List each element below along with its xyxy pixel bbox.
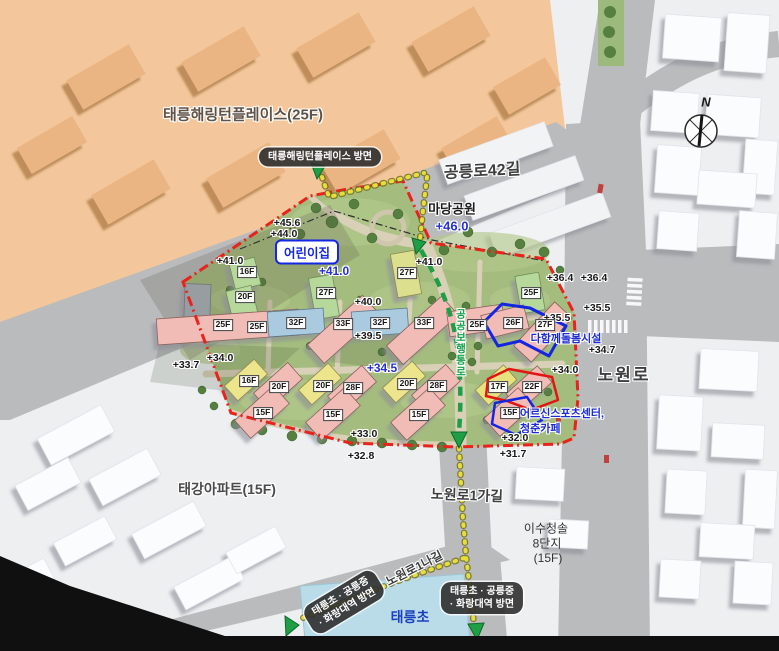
compass-north-label: N xyxy=(701,95,710,110)
road-label-nowonro1gagil: 노원로1가길 xyxy=(431,484,504,507)
building-floor-label: 22F xyxy=(522,381,542,393)
building-floor-label: 25F xyxy=(467,319,487,331)
elevation-label: +35.5 xyxy=(584,302,611,314)
direction-badge-line2: · 화랑대역 방면 xyxy=(450,598,514,611)
building-floor-label: 20F xyxy=(313,380,333,392)
building-floor-label: 33F xyxy=(414,317,434,329)
direction-badge-line1: 태릉초 · 공릉중 xyxy=(450,585,514,598)
building-floor-label: 27F xyxy=(316,287,336,299)
elevation-label-blue: +34.5 xyxy=(367,361,397,375)
green-strip xyxy=(598,0,624,66)
building-floor-label: 27F xyxy=(535,319,555,331)
elevation-label: +32.0 xyxy=(502,432,529,444)
building-floor-label: 32F xyxy=(286,317,306,329)
facility-label-senior-sports: 어르신스포츠센터, xyxy=(520,405,604,421)
elevation-label: +34.0 xyxy=(207,352,234,364)
building-floor-label: 15F xyxy=(323,409,343,421)
building-floor-label: 33F xyxy=(333,318,353,330)
building-floor-label: 17F xyxy=(488,381,508,393)
elevation-label: +41.0 xyxy=(416,256,443,268)
building-floor-label: 25F xyxy=(213,319,233,331)
district-label-taegang: 태강아파트(15F) xyxy=(178,479,276,499)
elevation-label-blue: +41.0 xyxy=(319,264,349,278)
site-plan-map: 태릉해링턴플레이스(25F) 공릉로42길 노원로 노원로1가길 노원로1나길 … xyxy=(0,0,779,651)
elevation-label: +39.5 xyxy=(355,330,382,342)
building-floor-label: 27F xyxy=(397,267,417,279)
district-label-isu-line3: (15F) xyxy=(534,551,563,565)
building-floor-label: 25F xyxy=(247,321,267,333)
district-label-taereung-elem: 태릉초 xyxy=(391,607,430,627)
elevation-label: +36.4 xyxy=(581,272,608,284)
building-floor-label: 16F xyxy=(237,266,257,278)
elevation-label-madang-park: +46.0 xyxy=(436,219,469,234)
direction-badge-harrington: 태릉해링턴플레이스 방면 xyxy=(259,148,381,167)
building-floor-label: 16F xyxy=(239,375,259,387)
elevation-label: +34.0 xyxy=(552,364,579,376)
building-floor-label: 20F xyxy=(235,291,255,303)
building-floor-label: 15F xyxy=(409,409,429,421)
elevation-label: +32.8 xyxy=(348,450,375,462)
elevation-label: +36.4 xyxy=(547,272,574,284)
building-floor-label: 26F xyxy=(503,317,523,329)
building-floor-label: 25F xyxy=(521,287,541,299)
building-floor-label: 15F xyxy=(253,407,273,419)
building-floor-label: 28F xyxy=(427,380,447,392)
elevation-label: +31.7 xyxy=(500,448,527,460)
facility-label-daycare: 어린이집 xyxy=(275,240,339,265)
elevation-label: +34.7 xyxy=(589,344,616,356)
building-floor-label: 20F xyxy=(269,381,289,393)
facility-label-madang-park: 마당공원 xyxy=(428,199,476,218)
building-floor-label: 15F xyxy=(500,407,520,419)
elevation-label: +44.0 xyxy=(271,228,298,240)
district-label-isu-line2: 8단지 xyxy=(533,535,562,552)
district-label-harrington: 태릉해링턴플레이스(25F) xyxy=(163,104,323,125)
direction-badge-south-right: 태릉초 · 공릉중 · 화랑대역 방면 xyxy=(441,582,523,614)
elevation-label: +33.0 xyxy=(351,428,378,440)
compass-icon xyxy=(685,115,717,147)
road-label-gongneungro42gil: 공릉로42길 xyxy=(443,155,521,183)
building-floor-label: 20F xyxy=(397,378,417,390)
elevation-label: +33.7 xyxy=(173,359,200,371)
road-label-nowonro: 노원로 xyxy=(598,361,651,386)
building-floor-label: 28F xyxy=(343,382,363,394)
building-floor-label: 32F xyxy=(370,317,390,329)
elevation-label: +40.0 xyxy=(355,296,382,308)
